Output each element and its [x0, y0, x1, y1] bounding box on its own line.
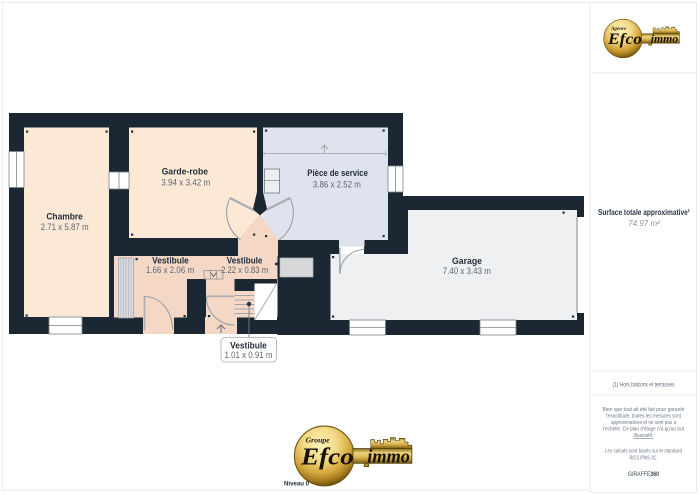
svg-text:2.22 x 0.83 m: 2.22 x 0.83 m	[221, 265, 268, 275]
svg-text:(1) Hors balcons et terrasses: (1) Hors balcons et terrasses	[613, 382, 675, 389]
svg-text:Garage: Garage	[452, 256, 482, 266]
svg-text:Vestibule: Vestibule	[227, 255, 263, 265]
svg-text:GIRAFFE360: GIRAFFE360	[628, 471, 659, 478]
svg-text:1.01 x 0.91 m: 1.01 x 0.91 m	[225, 350, 273, 360]
svg-text:approximatives et ne sont pas: approximatives et ne sont pas à	[611, 420, 677, 426]
svg-text:Niveau 0: Niveau 0	[284, 481, 309, 488]
svg-text:1.66 x 2.06 m: 1.66 x 2.06 m	[146, 265, 194, 275]
svg-text:Pièce de service: Pièce de service	[307, 168, 368, 178]
svg-text:3.94 x 3.42 m: 3.94 x 3.42 m	[161, 178, 210, 188]
svg-text:RICS IPMS 3C.: RICS IPMS 3C.	[630, 456, 658, 462]
svg-text:l'échelle. Ce plan d'étage n'a: l'échelle. Ce plan d'étage n'a qu'un but	[603, 427, 684, 433]
svg-text:Chambre: Chambre	[46, 211, 83, 221]
svg-text:74.97 m²: 74.97 m²	[628, 219, 660, 228]
svg-text:l'exactitude, toutes les mesur: l'exactitude, toutes les mesures sont	[606, 414, 681, 420]
svg-text:Agence: Agence	[610, 27, 627, 32]
svg-text:Vestibule: Vestibule	[152, 255, 189, 265]
svg-text:illustratif.: illustratif.	[634, 433, 654, 439]
svg-text:Groupe: Groupe	[306, 436, 331, 445]
svg-text:Les calculs sont basés sur le: Les calculs sont basés sur le standard	[605, 449, 682, 455]
svg-text:Garde-robe: Garde-robe	[162, 167, 208, 177]
svg-text:Surface totale approximative¹: Surface totale approximative¹	[598, 207, 690, 217]
svg-text:2.71 x 5.87 m: 2.71 x 5.87 m	[41, 222, 89, 232]
svg-text:7.40 x 3.43 m: 7.40 x 3.43 m	[443, 266, 491, 276]
svg-text:3.86 x 2.52 m: 3.86 x 2.52 m	[313, 179, 361, 189]
svg-text:Bien que tout ait été fait pou: Bien que tout ait été fait pour garantir	[603, 407, 685, 413]
svg-text:Vestibule: Vestibule	[230, 340, 267, 350]
